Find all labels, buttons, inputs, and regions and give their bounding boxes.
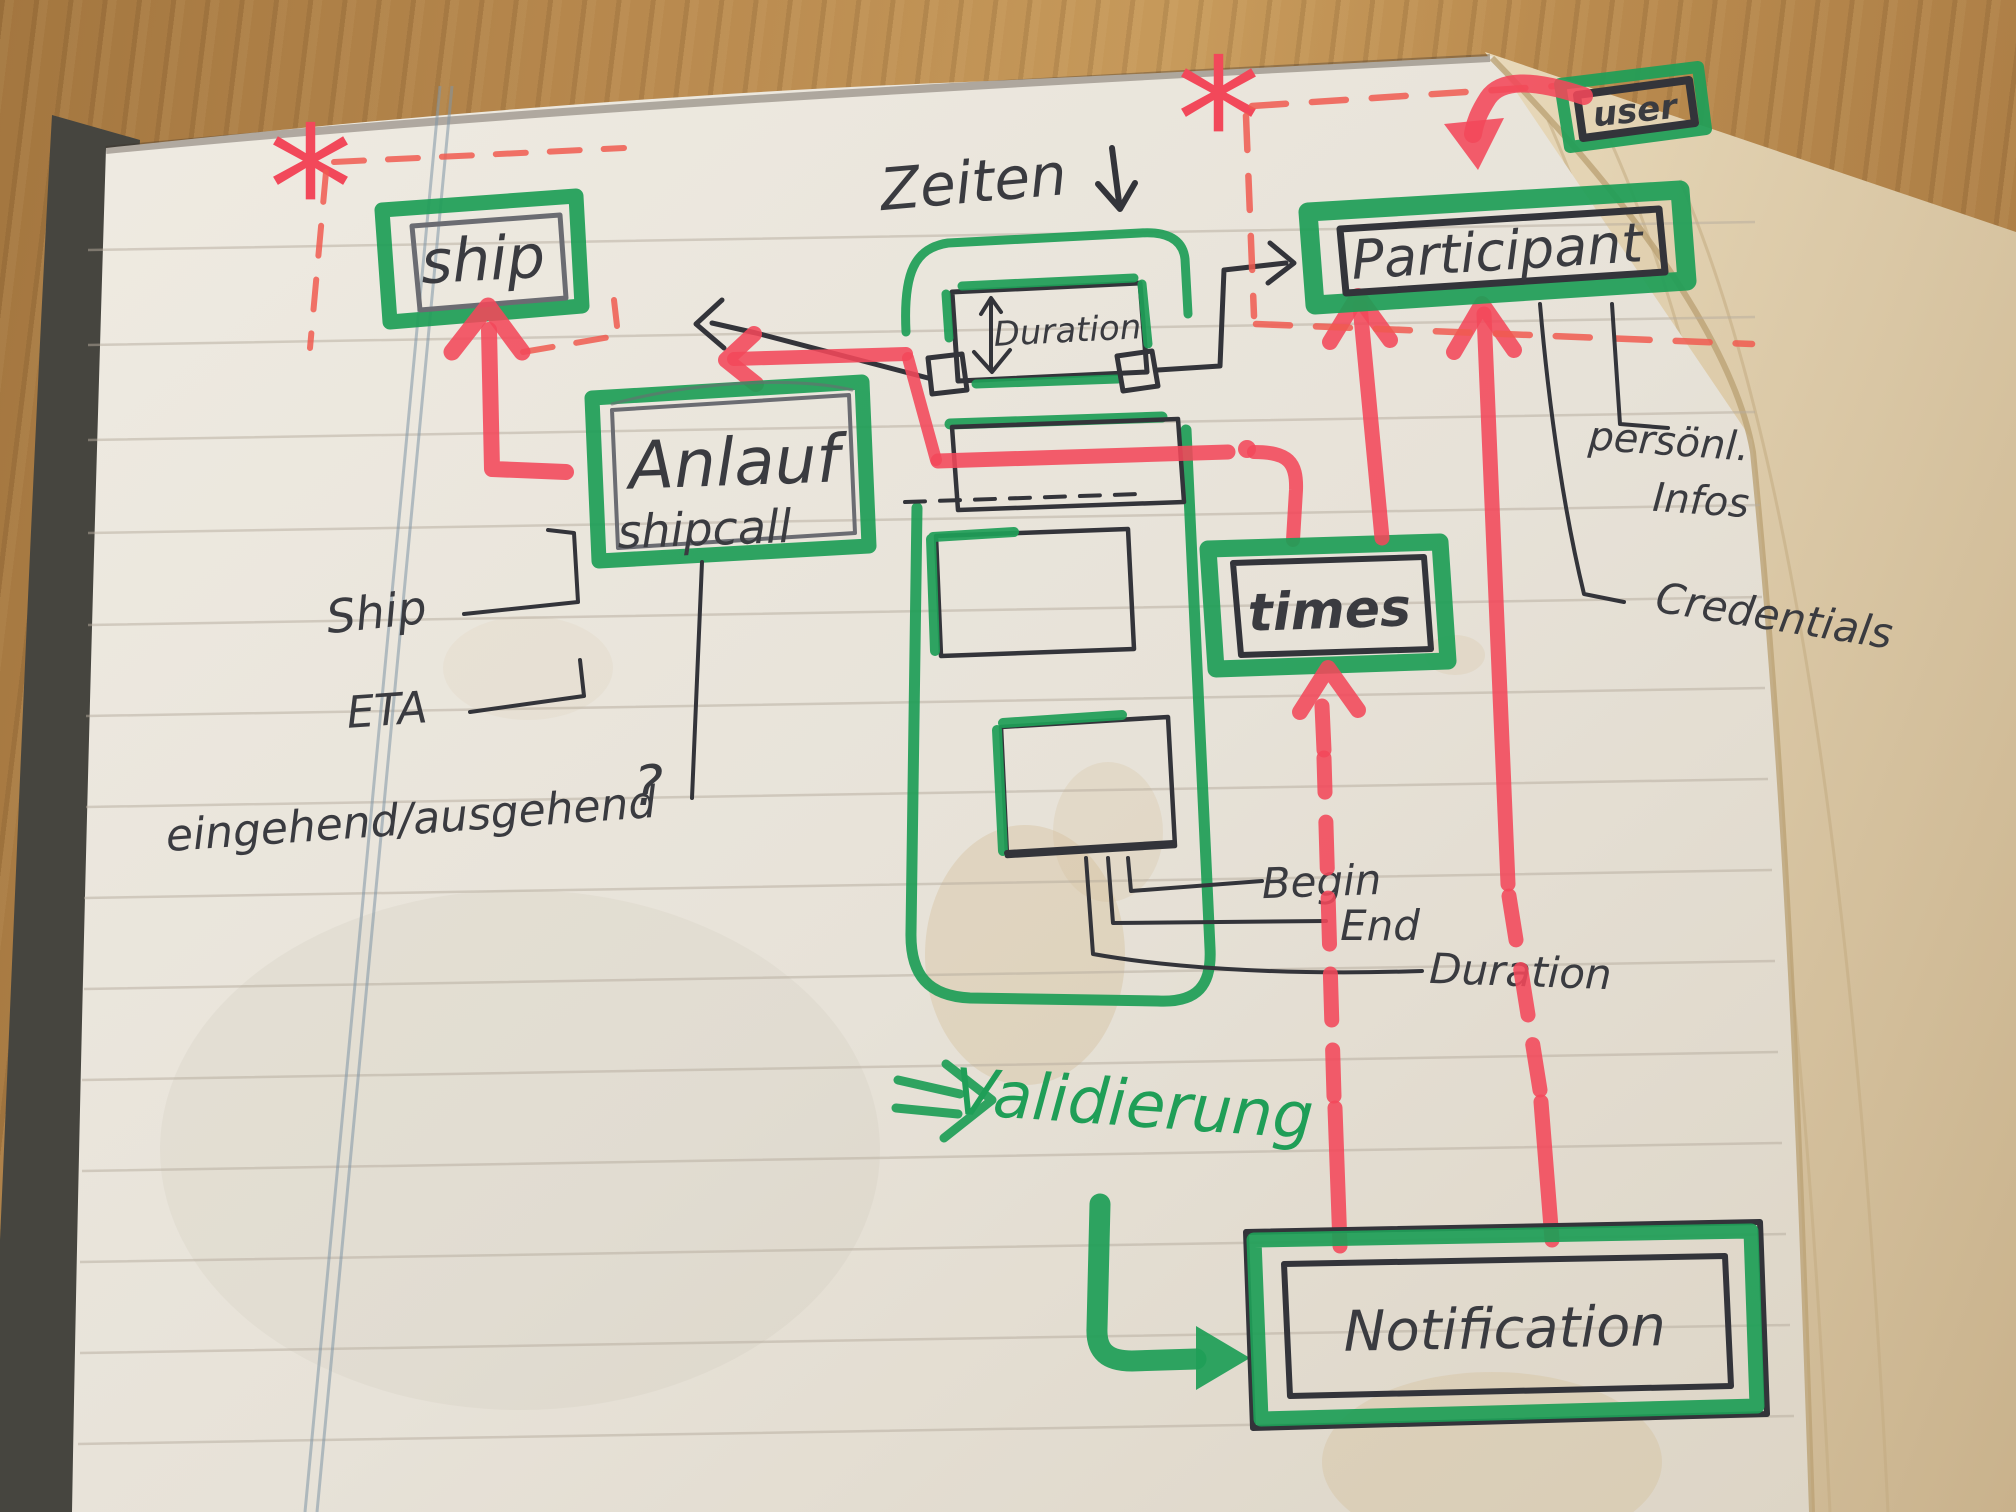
duration-box-label: Duration: [993, 307, 1143, 355]
inout-question-mark: ?: [633, 754, 663, 819]
notebook-photo: * ship Zeiten Duration: [0, 0, 2016, 1512]
user-box: user: [1560, 67, 1706, 147]
asterisk-ship: *: [268, 91, 353, 289]
times-box-label: times: [1247, 578, 1412, 644]
hand-drawn-diagram: * ship Zeiten Duration: [0, 0, 2016, 1512]
end-label: End: [1340, 901, 1420, 950]
shipcall-label-line2: shipcall: [616, 499, 792, 559]
ship-box-label: ship: [419, 222, 547, 298]
personal-infos-line2: Infos: [1651, 475, 1751, 528]
shipcall-label-line1: Anlauf: [624, 420, 850, 505]
eta-attr-label: ETA: [345, 682, 429, 739]
ship-attr-label: Ship: [324, 580, 429, 644]
notification-label: Notification: [1343, 1294, 1666, 1365]
